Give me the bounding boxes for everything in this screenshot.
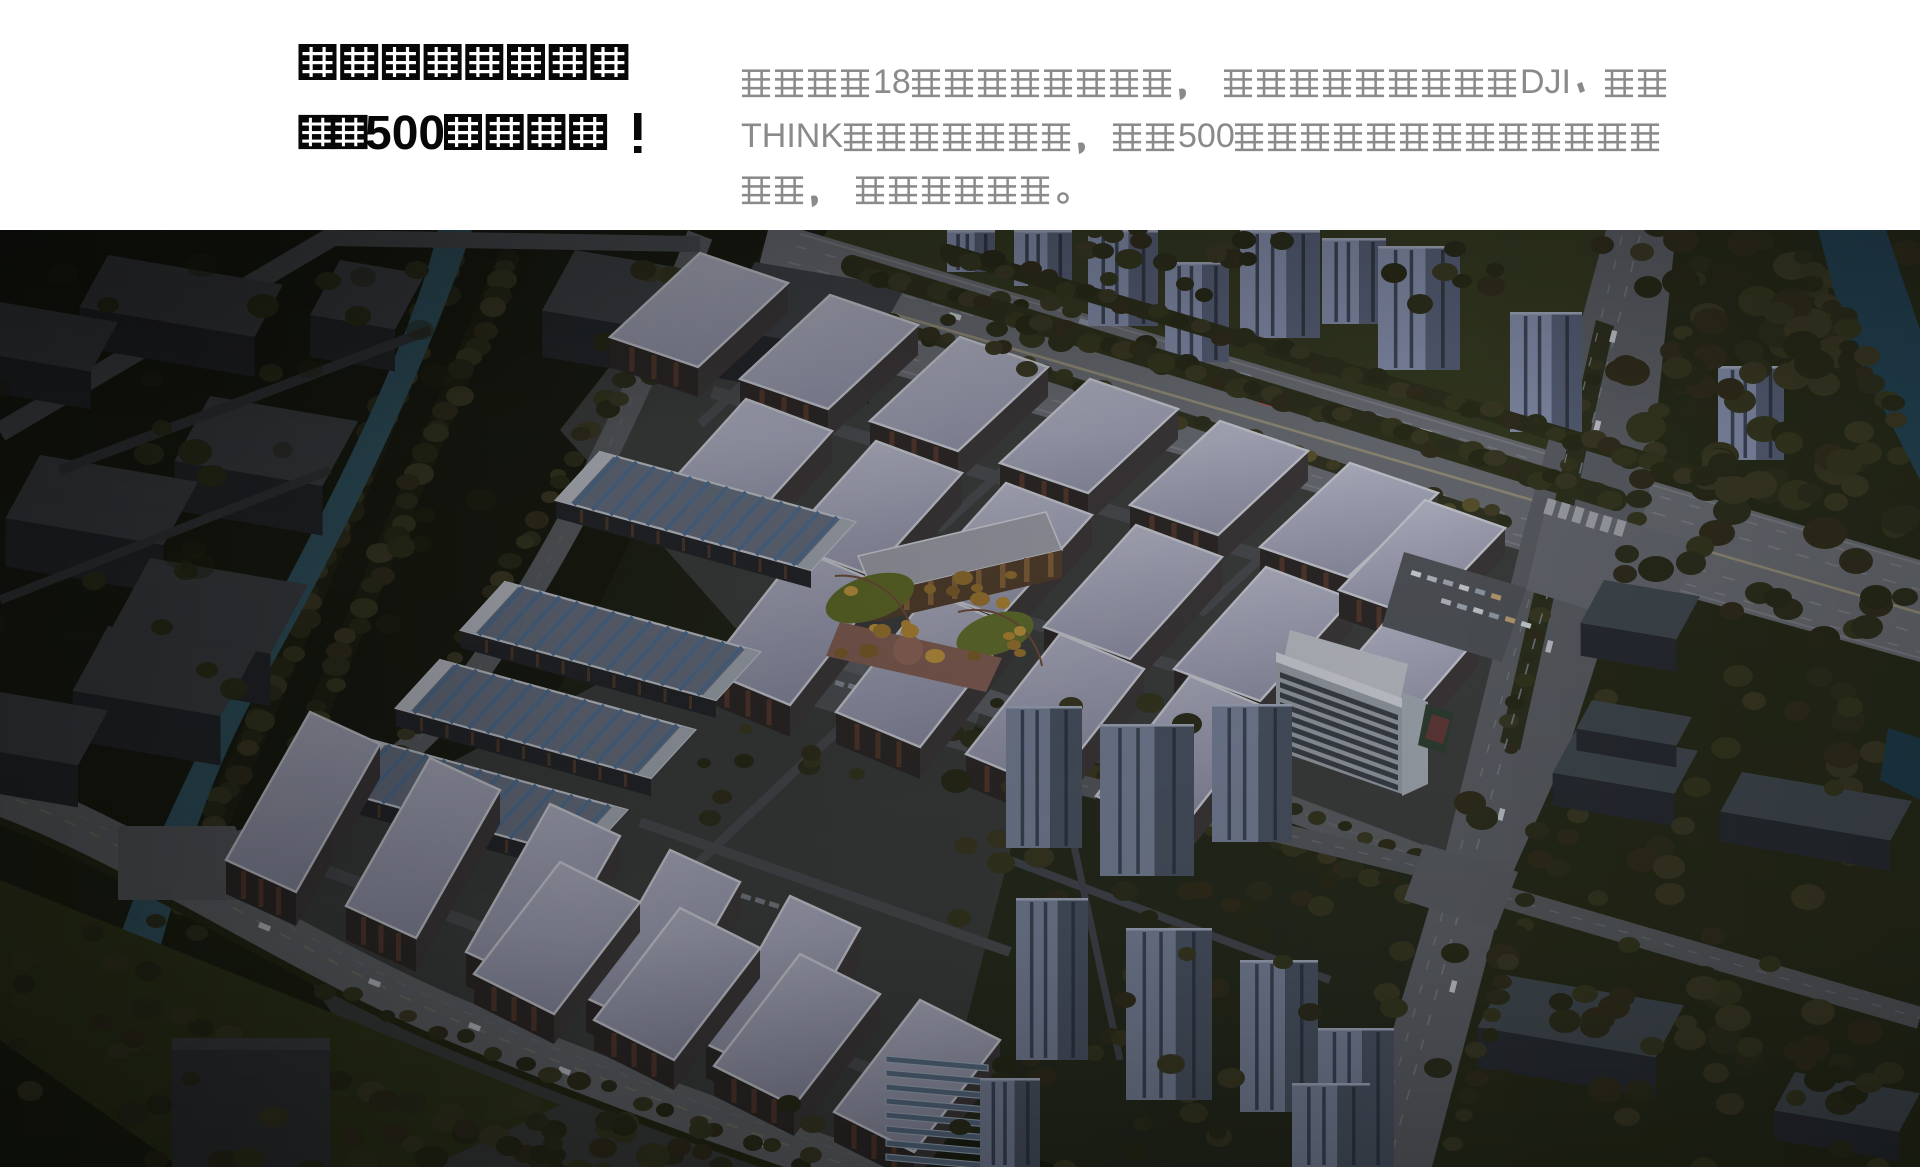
svg-text:DJI: DJI [1520, 63, 1571, 101]
svg-text:500: 500 [365, 107, 445, 160]
svg-text:500: 500 [1178, 117, 1235, 155]
svg-text:18: 18 [873, 63, 911, 101]
svg-text:THINK: THINK [741, 117, 843, 155]
